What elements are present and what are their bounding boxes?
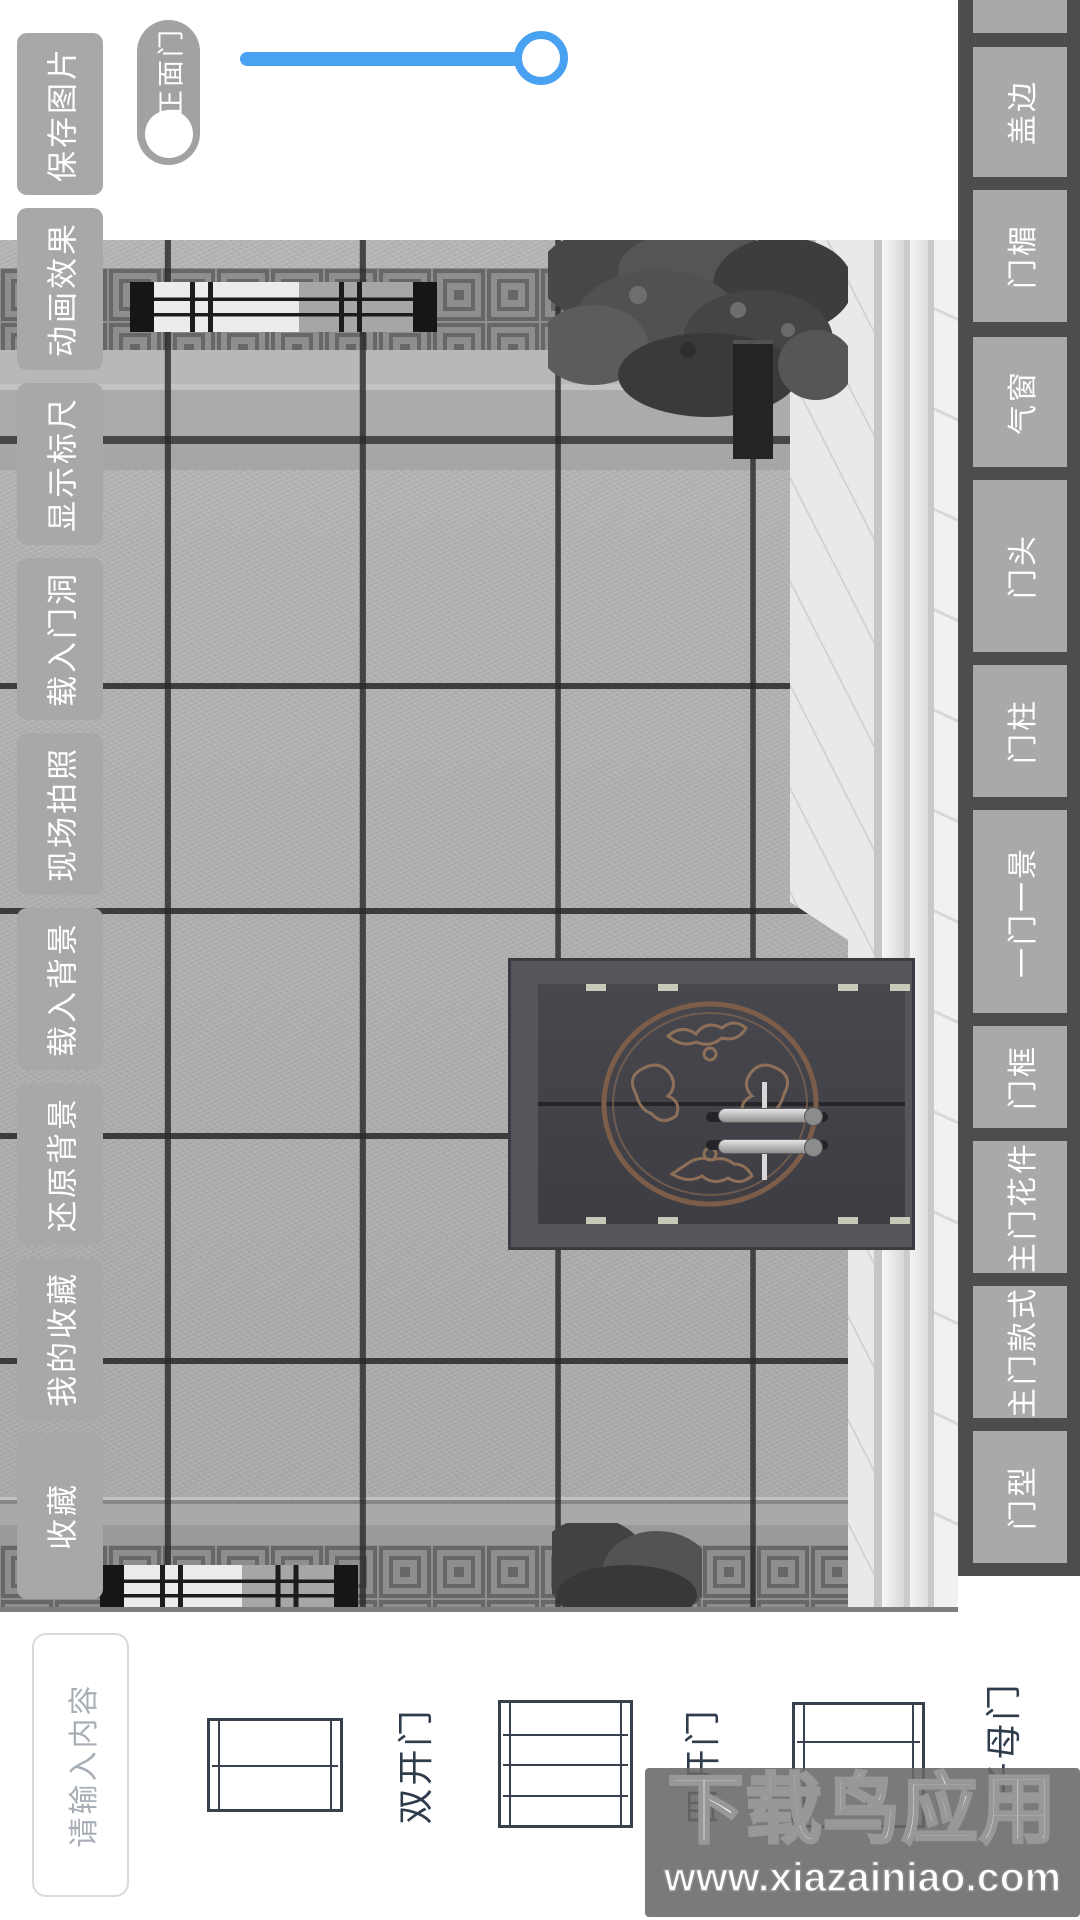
site-photo-button[interactable]: 现场拍照: [17, 733, 103, 895]
scene-photo[interactable]: [0, 240, 958, 1612]
column-flute: [910, 240, 928, 1612]
door-hinge: [890, 984, 910, 991]
door-panels: [538, 984, 905, 1224]
watermark-url: www.xiazainiao.com: [645, 1854, 1080, 1900]
door-hinge: [658, 984, 678, 991]
door-handle-right: [718, 1139, 812, 1154]
watermark-overlay: 下载鸟应用 www.xiazainiao.com: [645, 1768, 1080, 1917]
save-image-button[interactable]: 保存图片: [17, 33, 103, 195]
corner-pier: [934, 240, 958, 1612]
two-leaf-door-icon[interactable]: [207, 1718, 343, 1812]
front-door-toggle-label: 正面门: [149, 27, 188, 117]
toggle-knob[interactable]: [145, 110, 193, 158]
cover-edge-button[interactable]: 盖边: [973, 47, 1067, 177]
animation-effect-button[interactable]: 动画效果: [17, 208, 103, 370]
door-hinge: [586, 1217, 606, 1224]
zoom-slider-track[interactable]: [240, 52, 542, 66]
lintel-button[interactable]: 门楣: [973, 190, 1067, 322]
main-door-ornament-button[interactable]: 主门花件: [973, 1141, 1067, 1273]
door-pillar-button[interactable]: 门柱: [973, 665, 1067, 797]
transom-window-button[interactable]: 气窗: [973, 337, 1067, 467]
load-door-opening-button[interactable]: 载入门洞: [17, 558, 103, 720]
door-hinge: [586, 984, 606, 991]
door-hinge: [838, 984, 858, 991]
door-head-button[interactable]: 门头: [973, 480, 1067, 652]
door-handle-left: [718, 1108, 812, 1123]
app-screen: 保存图片 动画效果 显示标尺 载入门洞 现场拍照 载入背景 还原背景 我的收藏 …: [0, 0, 1080, 1920]
main-door[interactable]: [508, 958, 915, 1250]
door-hinge: [890, 1217, 910, 1224]
main-door-style-button[interactable]: 主门款式: [973, 1286, 1067, 1418]
door-type-button[interactable]: 门型: [973, 1431, 1067, 1563]
column-flute: [882, 240, 904, 1612]
tree-foliage-top: [548, 240, 848, 420]
search-input[interactable]: 请输入内容: [32, 1633, 129, 1897]
right-options-panel: 盖边 门楣 气窗 门头 门柱 一门一景 门框 主门花件 主门款式 门型: [958, 0, 1080, 1576]
watermark-title: 下载鸟应用: [645, 1768, 1080, 1854]
load-background-button[interactable]: 载入背景: [17, 908, 103, 1070]
door-type-label-double[interactable]: 双开门: [378, 1711, 448, 1821]
favorite-button[interactable]: 收藏: [17, 1433, 103, 1599]
door-hinge: [838, 1217, 858, 1224]
door-hinge: [658, 1217, 678, 1224]
tree-foliage-bottom: [552, 1523, 702, 1612]
zoom-slider-thumb[interactable]: [514, 31, 568, 85]
one-door-one-scene-button[interactable]: 一门一景: [973, 810, 1067, 1013]
partial-option-button[interactable]: [973, 0, 1067, 33]
search-input-placeholder: 请输入内容: [59, 1683, 103, 1848]
stone-bench-bottom: [100, 1565, 358, 1612]
door-frame-button[interactable]: 门框: [973, 1026, 1067, 1128]
door-medallion: [598, 998, 822, 1210]
show-ruler-button[interactable]: 显示标尺: [17, 383, 103, 545]
tree-planter: [733, 340, 773, 459]
stone-bench-top: [130, 282, 437, 332]
restore-background-button[interactable]: 还原背景: [17, 1083, 103, 1245]
four-leaf-door-icon[interactable]: [498, 1700, 633, 1828]
my-favorites-button[interactable]: 我的收藏: [17, 1258, 103, 1420]
front-door-toggle[interactable]: 正面门: [137, 20, 200, 165]
